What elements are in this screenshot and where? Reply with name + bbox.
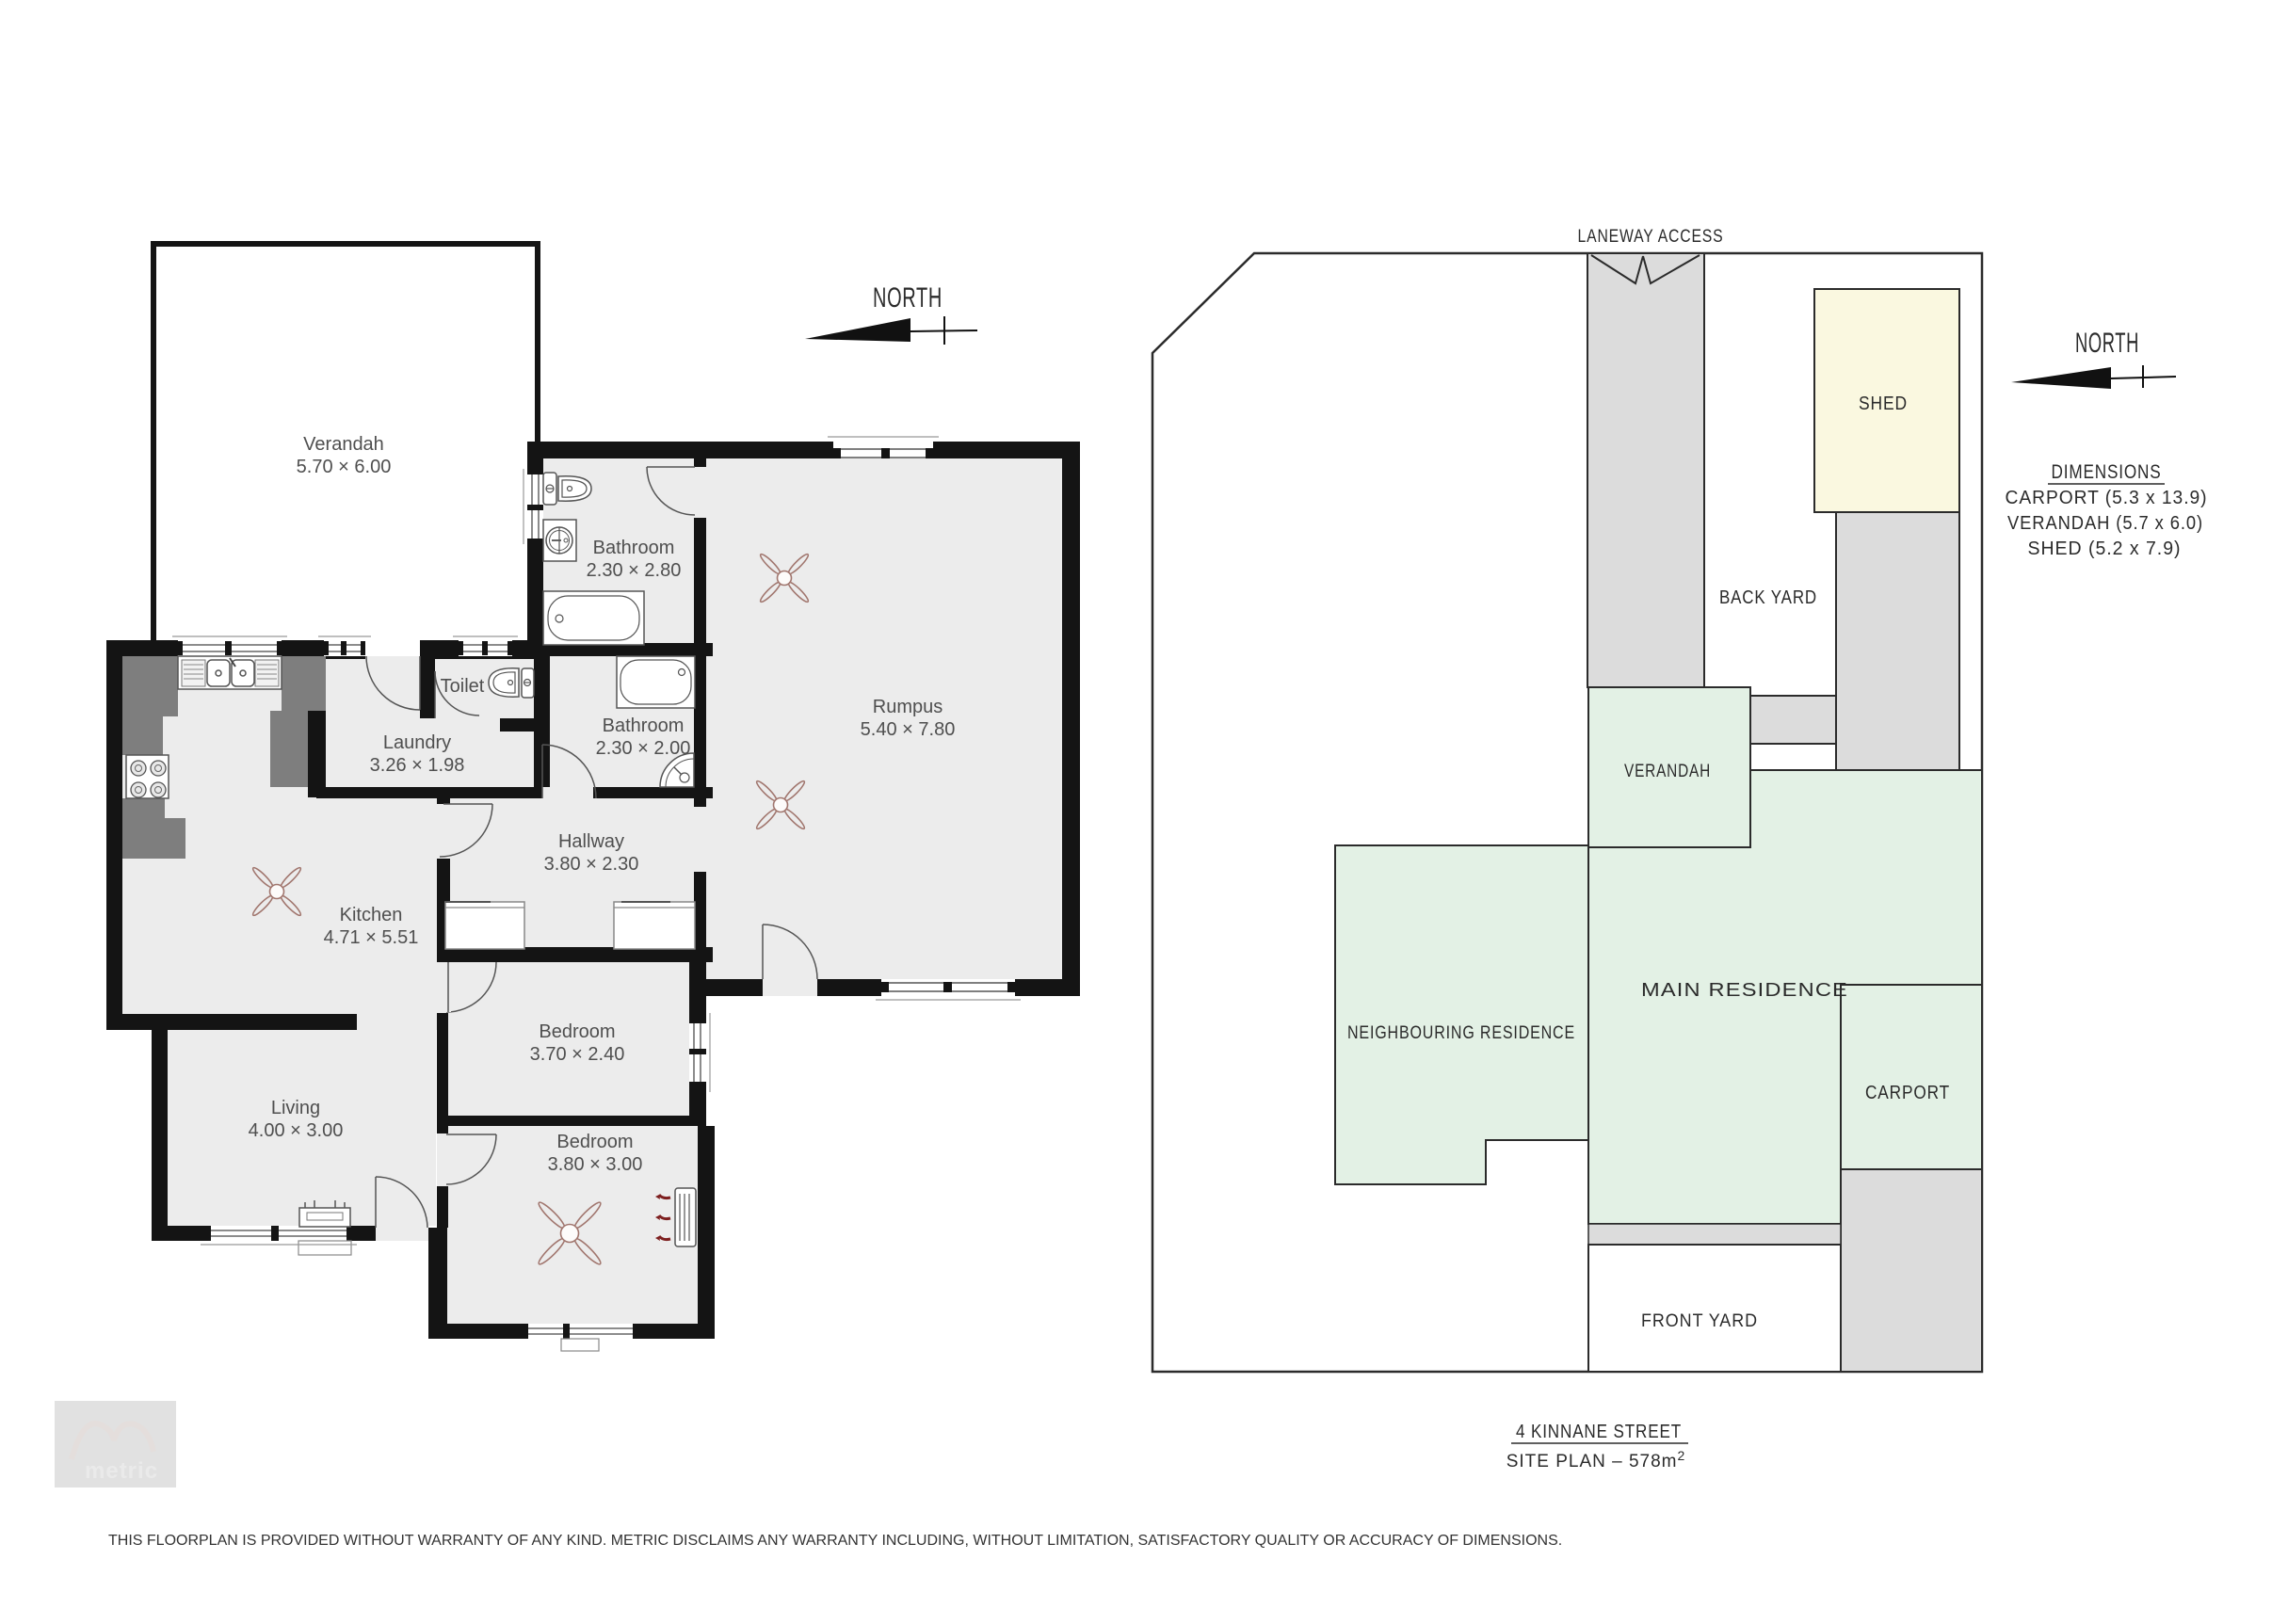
svg-text:Bathroom: Bathroom [593, 538, 675, 558]
svg-text:Toilet: Toilet [441, 676, 485, 697]
svg-text:MAIN RESIDENCE: MAIN RESIDENCE [1641, 980, 1848, 1001]
svg-text:Kitchen: Kitchen [340, 905, 403, 925]
svg-text:3.26 × 1.98: 3.26 × 1.98 [370, 755, 465, 776]
svg-text:3.80 × 3.00: 3.80 × 3.00 [548, 1154, 643, 1175]
svg-text:THIS FLOORPLAN IS PROVIDED WIT: THIS FLOORPLAN IS PROVIDED WITHOUT WARRA… [108, 1533, 1562, 1549]
svg-text:BACK YARD: BACK YARD [1719, 587, 1817, 608]
svg-text:3.80 × 2.30: 3.80 × 2.30 [544, 854, 639, 875]
svg-text:SHED (5.2 x 7.9): SHED (5.2 x 7.9) [2028, 539, 2182, 559]
svg-text:VERANDAH: VERANDAH [1624, 762, 1711, 781]
svg-text:NORTH: NORTH [2075, 328, 2139, 359]
svg-text:NORTH: NORTH [873, 282, 943, 314]
svg-text:CARPORT (5.3 x 13.9): CARPORT (5.3 x 13.9) [2006, 488, 2208, 508]
svg-text:SHED: SHED [1859, 394, 1908, 414]
svg-text:Bedroom: Bedroom [539, 1021, 615, 1042]
svg-text:Bedroom: Bedroom [556, 1132, 633, 1152]
svg-text:VERANDAH (5.7 x 6.0): VERANDAH (5.7 x 6.0) [2007, 513, 2203, 534]
svg-text:2.30 × 2.00: 2.30 × 2.00 [596, 738, 691, 759]
svg-text:Verandah: Verandah [303, 434, 384, 455]
svg-text:FRONT YARD: FRONT YARD [1641, 1311, 1758, 1331]
svg-text:4.00 × 3.00: 4.00 × 3.00 [249, 1120, 344, 1141]
svg-text:SITE PLAN – 578m2: SITE PLAN – 578m2 [1507, 1448, 1686, 1471]
svg-text:2.30 × 2.80: 2.30 × 2.80 [587, 560, 682, 581]
svg-text:CARPORT: CARPORT [1865, 1083, 1950, 1103]
svg-text:4 KINNANE STREET: 4 KINNANE STREET [1516, 1422, 1682, 1442]
svg-text:3.70 × 2.40: 3.70 × 2.40 [530, 1044, 625, 1065]
svg-text:Rumpus: Rumpus [873, 697, 943, 717]
svg-text:4.71 × 5.51: 4.71 × 5.51 [324, 927, 419, 948]
svg-text:metric: metric [85, 1458, 158, 1484]
svg-text:NEIGHBOURING RESIDENCE: NEIGHBOURING RESIDENCE [1347, 1023, 1575, 1043]
svg-text:DIMENSIONS: DIMENSIONS [2052, 461, 2162, 483]
svg-text:Bathroom: Bathroom [603, 716, 685, 736]
svg-text:LANEWAY ACCESS: LANEWAY ACCESS [1578, 227, 1724, 247]
svg-text:Hallway: Hallway [558, 831, 624, 852]
svg-text:Living: Living [271, 1098, 320, 1118]
svg-text:5.70 × 6.00: 5.70 × 6.00 [297, 457, 392, 477]
svg-text:5.40 × 7.80: 5.40 × 7.80 [861, 719, 956, 740]
svg-text:Laundry: Laundry [383, 732, 451, 753]
